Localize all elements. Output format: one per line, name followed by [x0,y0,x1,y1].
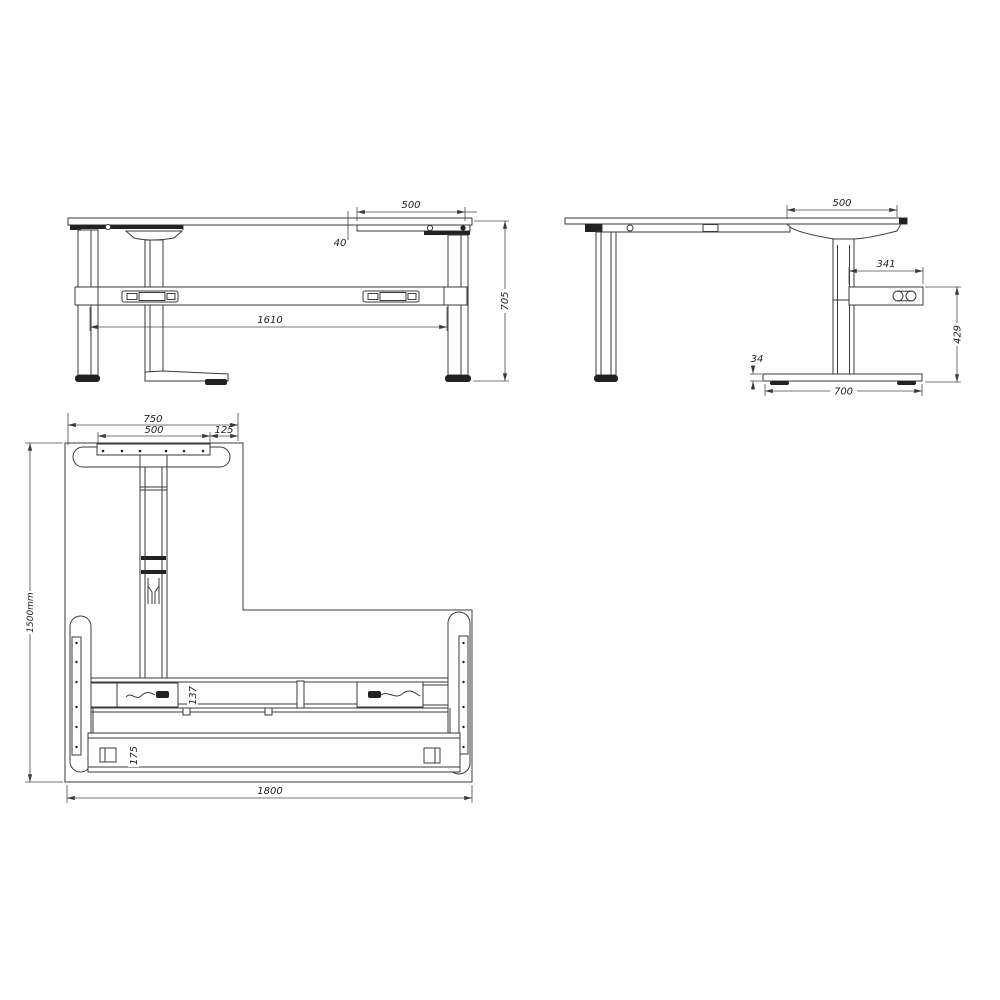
dim-foot-height: 34 [751,354,764,365]
front-corner-bracket [126,231,182,240]
plan-view: 750 500 125 1500mm 137 175 1800 [25,413,473,803]
front-right-foot-pad [445,375,471,382]
dim-control-box-width: 341 [876,259,895,270]
crossbar-slider-right [363,291,419,302]
dim-front-beam-span: 1610 [257,315,282,326]
plan-top-foot [73,444,230,467]
front-desktop [68,218,472,240]
side-far-leg [594,232,618,382]
dim-plan-beam-width: 137 [188,685,199,705]
technical-drawing: 500 40 1610 705 [0,0,1000,1000]
front-middle-foot-pad [205,379,227,385]
front-view: 500 40 1610 705 [68,200,511,385]
side-corner-bracket [787,224,901,239]
dim-box-to-floor: 429 [953,325,964,344]
dim-plan-edge-offset: 125 [214,425,233,436]
control-box [849,287,923,305]
dim-side-overhang: 500 [832,198,851,209]
plan-top-mounting-plate [97,444,210,455]
side-view: 500 341 429 34 700 [565,198,964,398]
page: 500 40 1610 705 [0,0,1000,1000]
plan-bracket-right [424,748,440,763]
side-foot-pad-left [770,381,789,385]
dim-plan-foot-span: 750 [143,414,162,425]
side-far-foot-pad [594,375,618,382]
dim-front-height: 705 [500,291,511,310]
front-crossbar [75,287,467,305]
cable-connector-left [156,691,169,698]
dim-plan-plate-width: 500 [144,425,163,436]
front-right-leg [445,235,471,382]
front-left-foot-pad [75,375,100,382]
side-near-leg [833,239,854,374]
dim-front-rail-gap: 40 [334,238,347,249]
plan-desktop-outline [65,443,472,782]
dim-front-overhang: 500 [401,200,420,211]
dim-foot-depth: 700 [834,387,853,398]
front-middle-leg [145,240,228,385]
plan-left-mounting-plate [72,637,81,755]
dim-plan-lower-beam-width: 175 [129,746,140,765]
plan-bracket-left [100,748,116,762]
side-foot-pad-right [897,381,916,385]
side-foot [763,374,922,385]
front-left-leg [75,230,100,382]
dim-plan-depth: 1500mm [26,592,36,633]
crossbar-slider-left [122,291,178,302]
dim-plan-width: 1800 [257,786,282,797]
cable-connector-right [368,691,381,698]
